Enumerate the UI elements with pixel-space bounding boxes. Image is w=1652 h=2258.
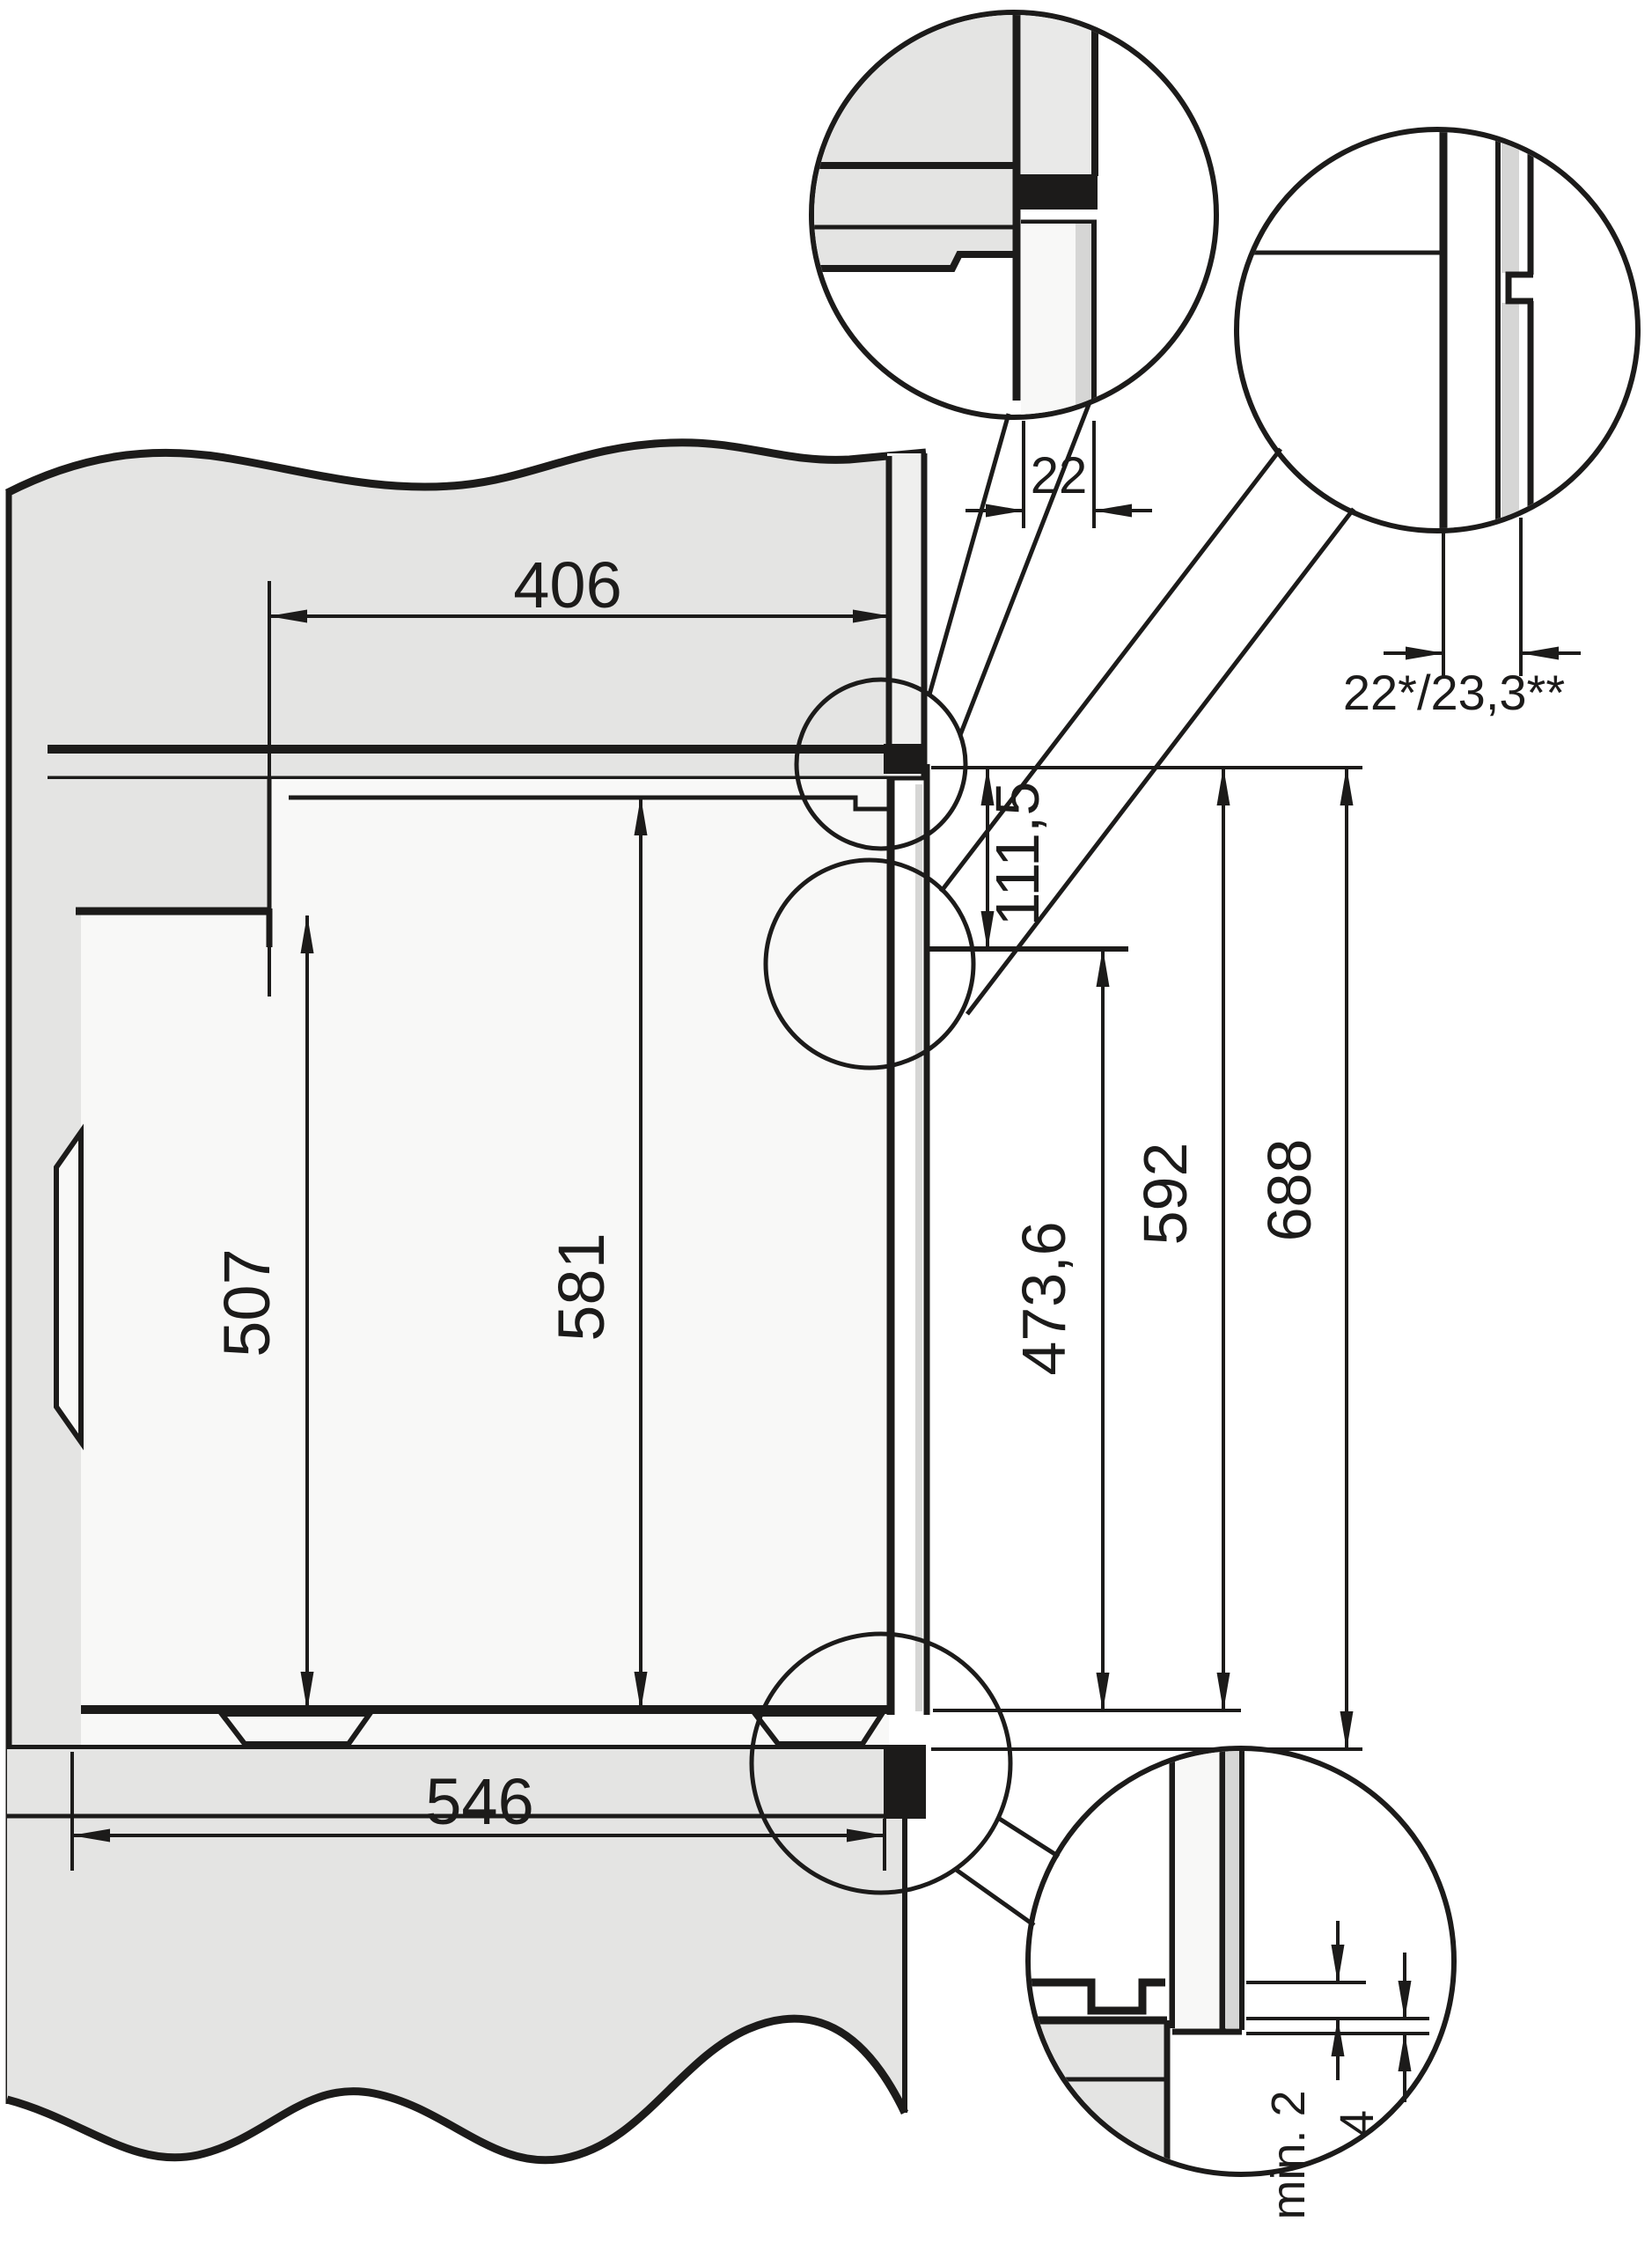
appliance-foot-front [755,1714,882,1744]
cabinet-top-block [7,443,887,779]
shelf-front-end [884,744,926,774]
dim-front-total-height-label: 592 [1131,1143,1200,1246]
dim-niche-total-height-label: 688 [1255,1139,1324,1242]
dim-rear-niche-height-label: 507 [210,1248,283,1357]
dim-front-overhang-label: 22*/23,3** [1343,665,1565,720]
rear-channel-recess [56,1132,81,1442]
dim-top-edge-clearance-label: 22 [1031,447,1088,504]
detail-circle-bottom-corner: min. 2 4 [1025,1748,1454,2220]
dim-door-front-height-label: 473,6 [1010,1221,1078,1375]
niche-cross-section-drawing: 406 507 581 546 111,5 473,6 592 688 [0,0,1652,2254]
installation-diagram: 406 507 581 546 111,5 473,6 592 688 [0,0,1652,2258]
cabinet-section [7,443,927,2160]
dim-lower-depth-label: 546 [425,1765,533,1838]
door-edge-layer [915,784,922,1711]
detail-circle-front-overhang: 22*/23,3** [1237,128,1638,720]
dim-bottom-edge-overlap-label: 4 [1331,2110,1384,2137]
niche-interior [81,779,889,1747]
detail-circle-top-corner: 22 [801,9,1216,528]
cabinet-front-board [887,453,926,779]
appliance-foot-rear [222,1714,370,1744]
dim-upper-niche-depth-label: 406 [513,548,621,622]
dimension-front-overhang: 22*/23,3** [1343,518,1581,720]
dim-bottom-min-clearance-label: min. 2 [1262,2090,1315,2219]
dim-control-panel-height-label: 111,5 [983,782,1052,927]
right-dimensions: 111,5 473,6 592 688 [927,768,1362,1749]
dim-front-niche-height-label: 581 [545,1232,618,1341]
dimension-bottom-clearances: min. 2 4 [1246,1921,1429,2220]
